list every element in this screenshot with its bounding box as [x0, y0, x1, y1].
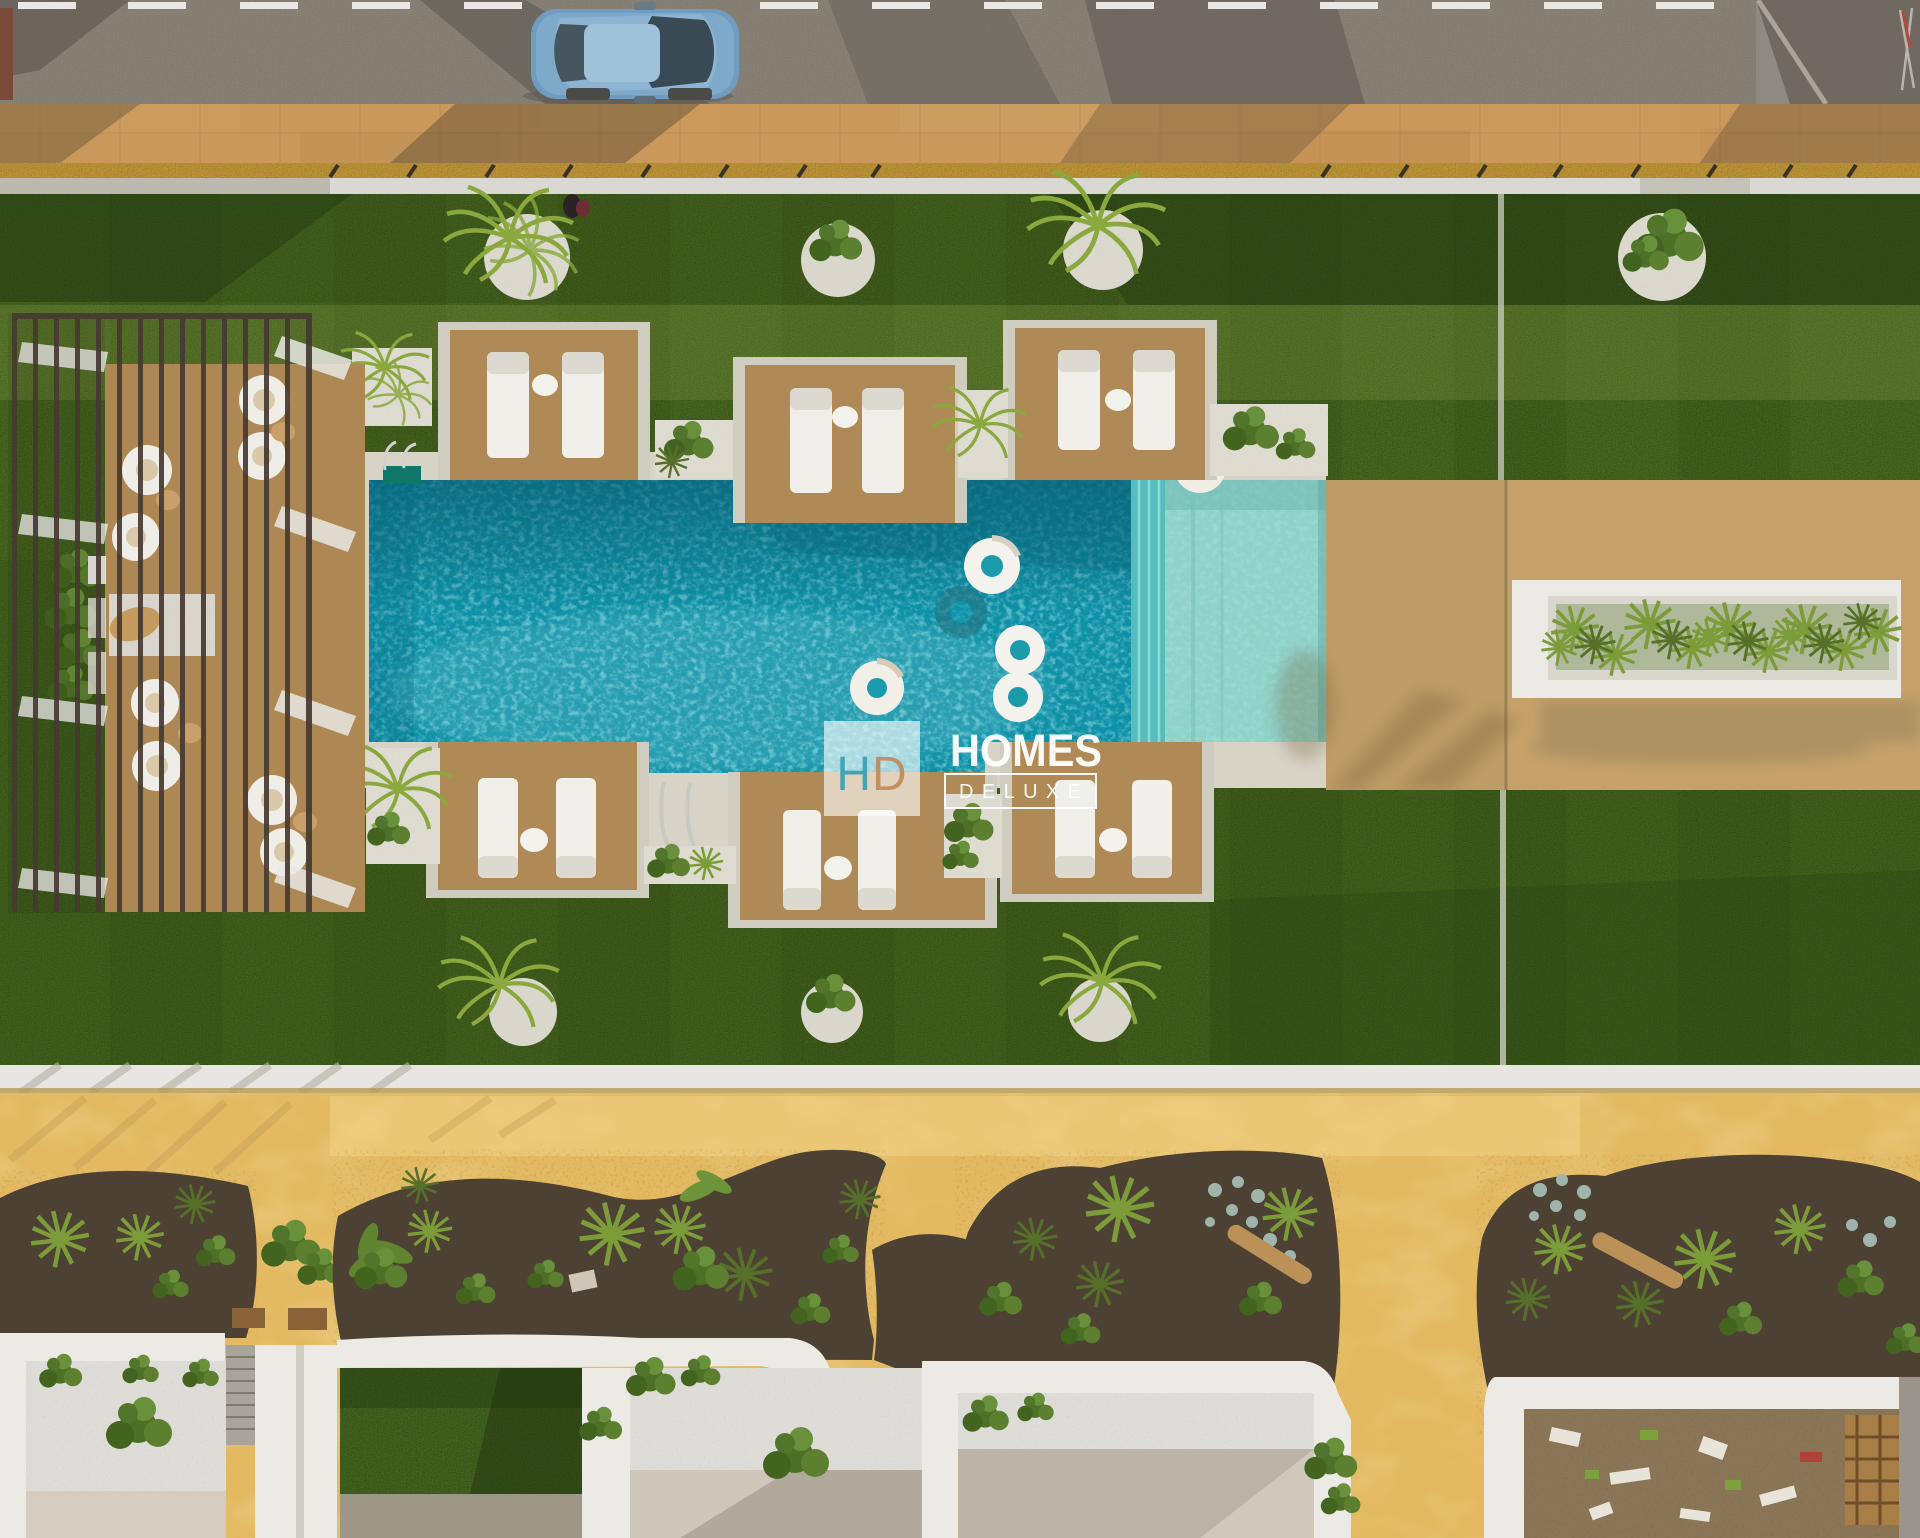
- svg-text:HOMES: HOMES: [950, 725, 1102, 776]
- svg-text:HD: HD: [836, 748, 907, 801]
